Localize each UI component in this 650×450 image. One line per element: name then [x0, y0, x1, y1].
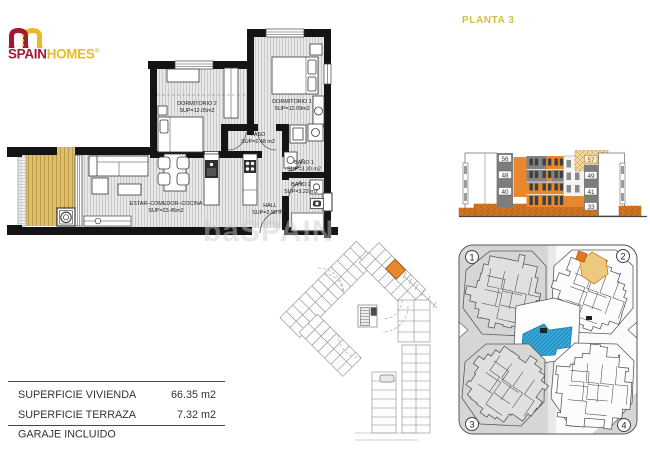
svg-text:4: 4	[621, 420, 626, 430]
svg-text:56: 56	[501, 156, 509, 163]
svg-text:GARAJE INCLUIDO: GARAJE INCLUIDO	[18, 429, 116, 441]
svg-text:1: 1	[469, 252, 474, 262]
svg-text:66.35 m2: 66.35 m2	[171, 389, 216, 401]
svg-text:BAÑO 2: BAÑO 2	[291, 181, 311, 188]
svg-text:33: 33	[587, 204, 595, 211]
svg-text:41: 41	[587, 189, 595, 196]
svg-text:57: 57	[587, 157, 595, 164]
svg-text:48: 48	[501, 172, 509, 179]
svg-text:SUPERFICIE VIVIENDA: SUPERFICIE VIVIENDA	[18, 389, 137, 401]
svg-text:SUPERFICIE TERRAZA: SUPERFICIE TERRAZA	[18, 409, 137, 421]
svg-text:SUP=2.48 m2: SUP=2.48 m2	[241, 139, 275, 145]
svg-text:DORMITORIO 2: DORMITORIO 2	[177, 101, 216, 107]
svg-text:3: 3	[469, 419, 474, 429]
svg-text:7.32 m2: 7.32 m2	[177, 409, 216, 421]
svg-text:SUP=3.22 m2: SUP=3.22 m2	[284, 189, 318, 195]
svg-text:baSPAIN: baSPAIN	[203, 215, 334, 248]
svg-text:PLANTA 3: PLANTA 3	[462, 15, 515, 26]
svg-text:SUP=3.30 m2: SUP=3.30 m2	[287, 167, 321, 173]
svg-text:SUP=12.09m2: SUP=12.09m2	[274, 106, 309, 112]
svg-text:HALL: HALL	[263, 203, 277, 209]
svg-text:49: 49	[587, 173, 595, 180]
svg-text:BAÑO 1: BAÑO 1	[294, 159, 314, 166]
svg-text:SPAINHOMES®: SPAINHOMES®	[8, 47, 100, 62]
svg-text:ESTAR–COMEDOR–COCINA: ESTAR–COMEDOR–COCINA	[130, 201, 203, 207]
svg-text:40: 40	[501, 189, 509, 196]
svg-text:SUP=12.05m2: SUP=12.05m2	[179, 108, 214, 114]
svg-text:2: 2	[620, 251, 625, 261]
svg-text:DORMITORIO 1: DORMITORIO 1	[272, 99, 311, 105]
svg-text:PASO: PASO	[251, 132, 266, 138]
svg-text:SUP=23.45m2: SUP=23.45m2	[148, 208, 183, 214]
